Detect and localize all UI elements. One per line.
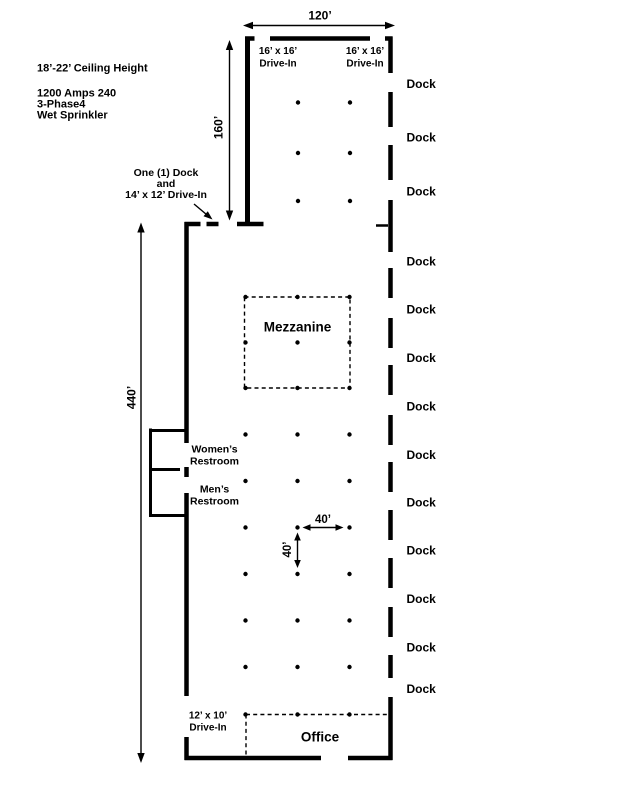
labels: 18’-22’ Ceiling Height 1200 Amps 240 3-P… [37,9,384,745]
dim-bay-y-arrowhead-top [294,533,301,541]
dim-160-arrowhead-bottom [226,211,233,221]
column-dot [243,572,247,576]
dock-label: Dock [407,255,437,269]
column-dot [295,665,299,669]
column-dot [243,340,247,344]
column-dot [347,572,351,576]
dim-120-label: 120’ [308,9,331,23]
column-dot [243,712,247,716]
dock-label: Dock [407,131,437,145]
dim-440-arrowhead-top [137,223,144,233]
mens-restroom-label-line1: Men’s [200,484,230,496]
dim-bay-x-arrowhead-left [303,524,311,531]
drive-in-left-type-label: Drive-In [259,59,296,70]
sprinkler-label: Wet Sprinkler [37,110,108,122]
column-dot [295,618,299,622]
dim-120-arrowhead-right [385,22,395,29]
column-dot [347,665,351,669]
dock-label: Dock [407,496,437,510]
column-dot [296,100,300,104]
column-dot [295,295,299,299]
womens-restroom-label-line2: Restroom [190,456,239,468]
column-dot [243,665,247,669]
dock-label: Dock [407,303,437,317]
column-dot [243,432,247,436]
column-dot [347,525,351,529]
column-dot [296,151,300,155]
column-dot [295,572,299,576]
column-dot [348,151,352,155]
column-dot [295,432,299,436]
column-dot [243,618,247,622]
dock-combo-leader-line [194,204,207,215]
dim-160-label: 160’ [212,116,226,139]
dim-440-label: 440’ [125,386,139,409]
column-dot [243,525,247,529]
dock-label: Dock [407,351,437,365]
building-walls [149,37,393,761]
ceiling-height-label: 18’-22’ Ceiling Height [37,63,148,75]
column-dot [348,100,352,104]
column-dot [347,479,351,483]
dim-160-arrowhead-top [226,40,233,50]
column-dot [347,340,351,344]
warehouse-floor-plan: 18’-22’ Ceiling Height 1200 Amps 240 3-P… [0,0,618,800]
floor-plan-page: 18’-22’ Ceiling Height 1200 Amps 240 3-P… [0,0,618,800]
column-dot [295,712,299,716]
dock-combo-label-line3: 14’ x 12’ Drive-In [125,189,207,201]
drive-in-right-type-label: Drive-In [346,59,383,70]
column-dot [347,432,351,436]
dock-label: Dock [407,592,437,606]
dock-labels: DockDockDockDockDockDockDockDockDockDock… [407,77,437,696]
dim-440-arrowhead-bottom [137,753,144,763]
column-dot [295,479,299,483]
dimension-arrows [137,22,395,763]
dock-label: Dock [407,544,437,558]
drive-in-bottom-size-label: 12’ x 10’ [189,711,228,722]
column-dot [296,199,300,203]
dock-label: Dock [407,400,437,414]
dock-label: Dock [407,682,437,696]
dock-label: Dock [407,185,437,199]
column-dot [348,199,352,203]
office-label: Office [301,730,340,745]
restroom-walls [149,429,188,518]
dim-bay-x-arrowhead-right [336,524,344,531]
column-dot [347,386,351,390]
mezzanine-label: Mezzanine [264,320,332,335]
column-dot [295,386,299,390]
dim-bay-x-label: 40’ [315,514,331,526]
column-dot [347,295,351,299]
dim-120-arrowhead-left [243,22,253,29]
mens-restroom-label-line2: Restroom [190,496,239,508]
column-dot [243,479,247,483]
womens-restroom-label-line1: Women’s [191,444,237,456]
column-dot [347,618,351,622]
drive-in-bottom-type-label: Drive-In [189,723,226,734]
drive-in-right-size-label: 16’ x 16’ [346,46,385,57]
drive-in-left-size-label: 16’ x 16’ [259,46,298,57]
dock-label: Dock [407,77,437,91]
dim-bay-y-label: 40’ [282,542,294,558]
column-grid-dots [243,100,352,716]
column-dot [347,712,351,716]
dock-label: Dock [407,448,437,462]
column-dot [295,340,299,344]
dock-label: Dock [407,641,437,655]
column-dot [295,525,299,529]
dim-bay-y-arrowhead-bottom [294,560,301,568]
column-dot [243,295,247,299]
column-dot [243,386,247,390]
